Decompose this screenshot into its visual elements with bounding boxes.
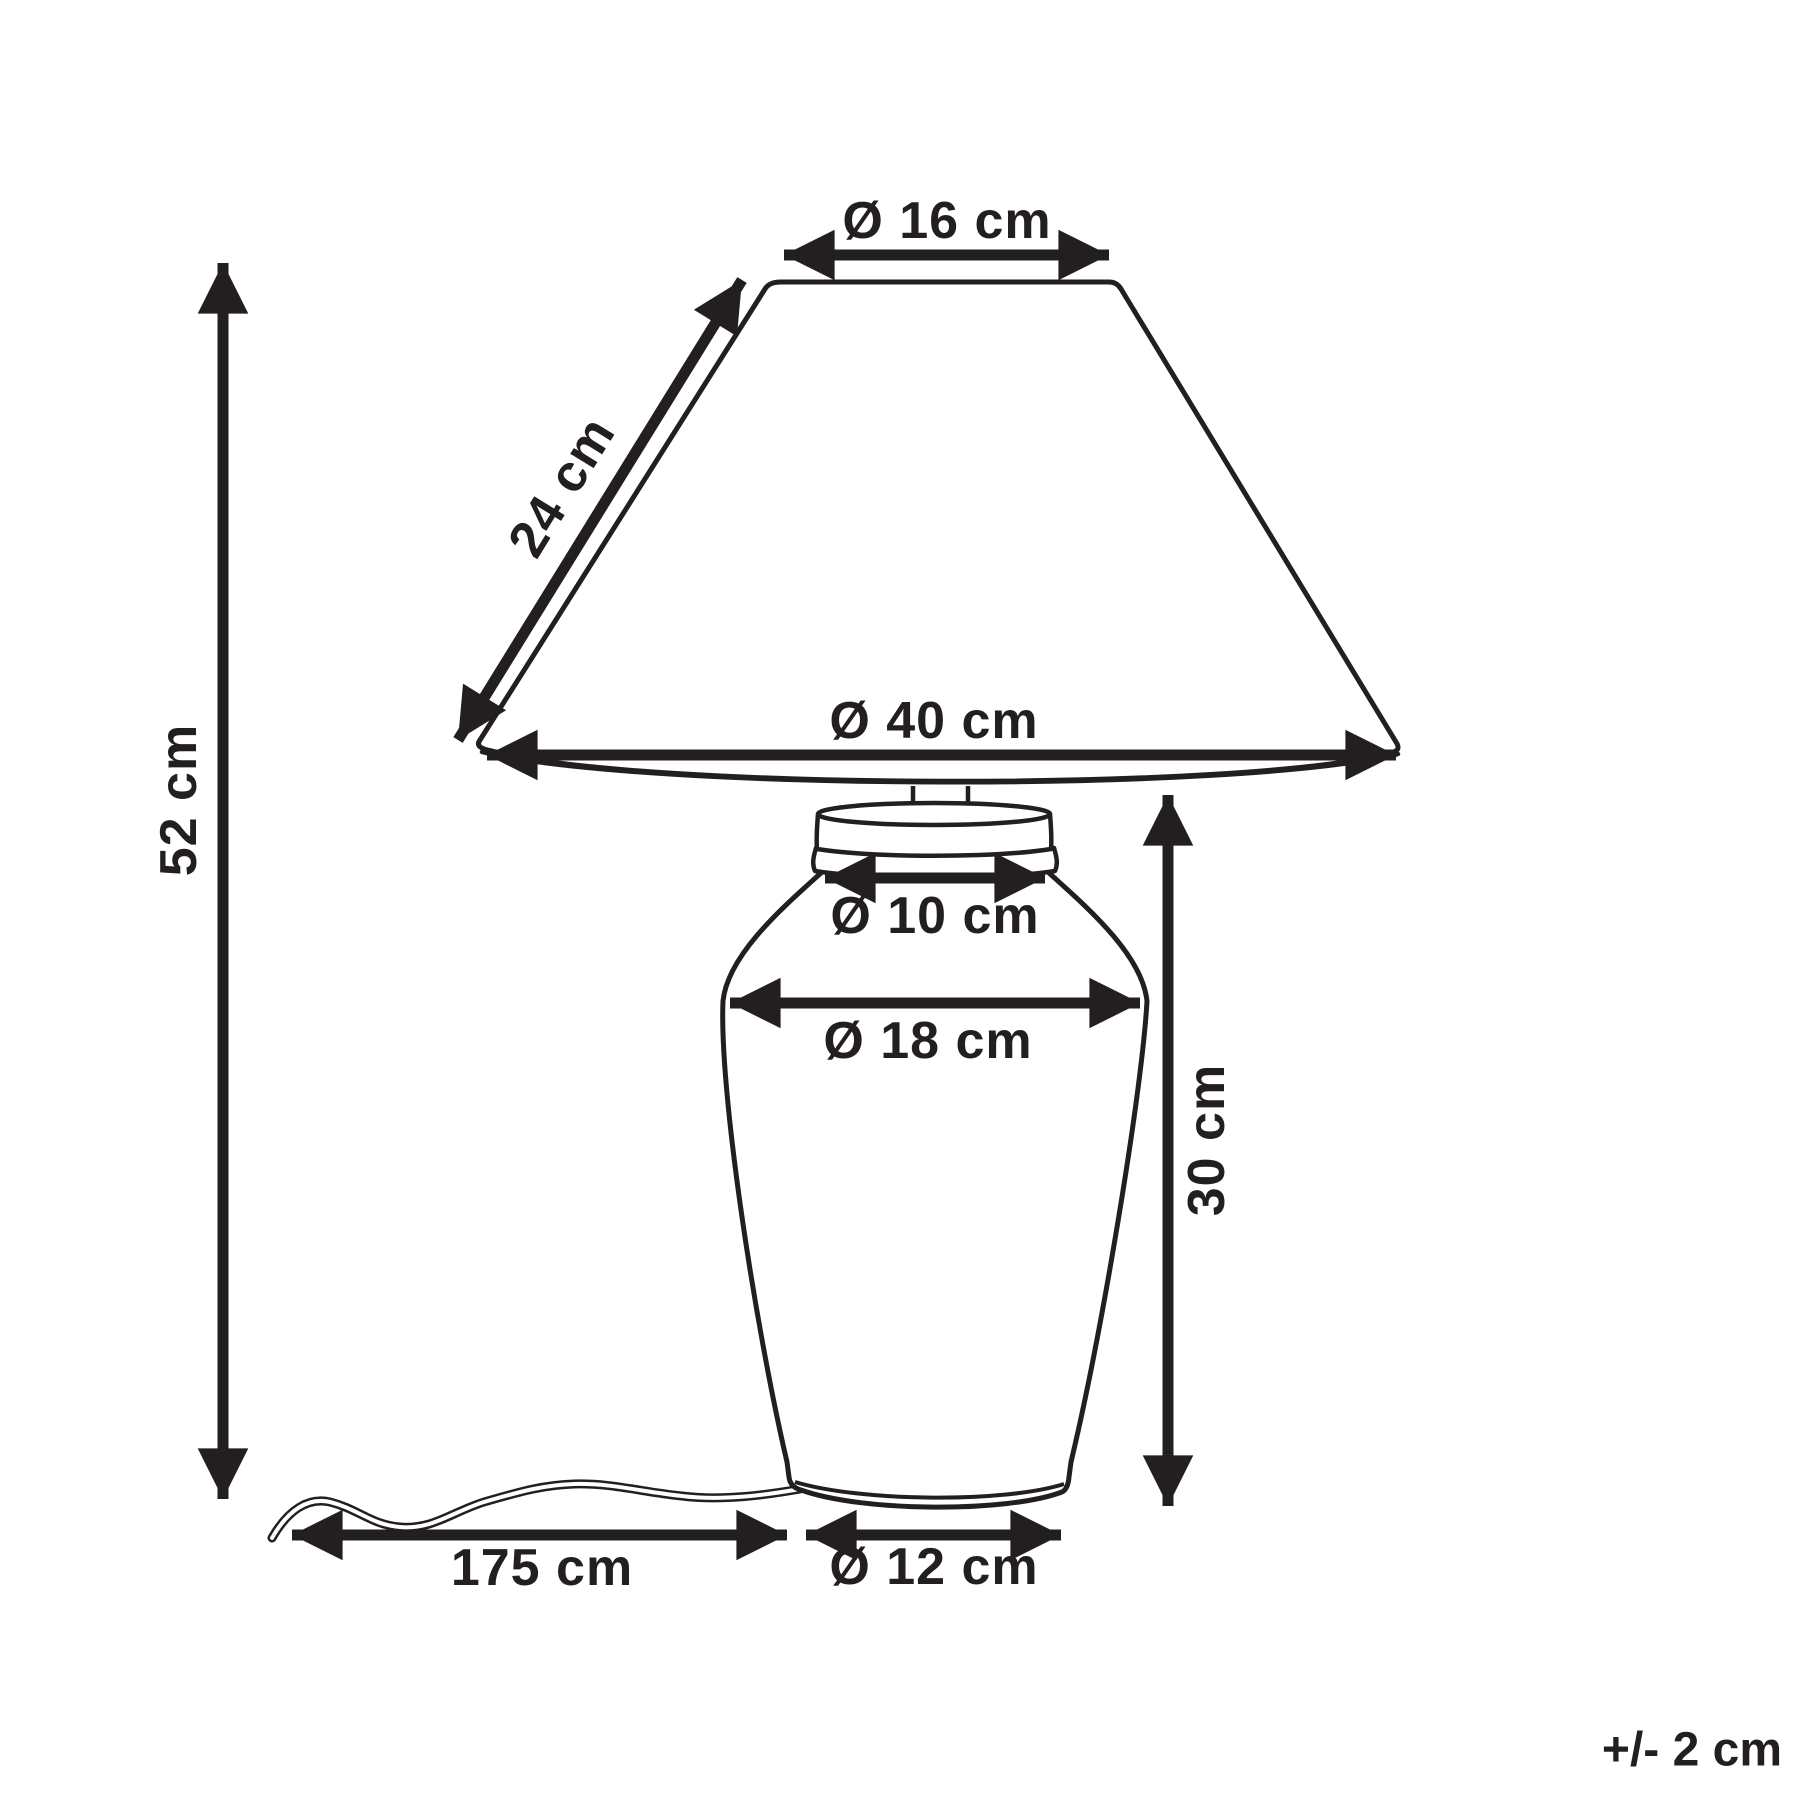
lamp-base-body [723,872,1147,1507]
lamp-neck-top-ellipse [818,803,1050,825]
dim-label-base-height: 30 cm [1178,1064,1236,1216]
dim-label-shade-top-diameter: Ø 16 cm [842,192,1051,250]
lamp-dimension-diagram: Ø 16 cm 24 cm Ø 40 cm Ø 10 cm Ø 18 cm 30… [0,0,1800,1800]
diagram-canvas: Ø 16 cm 24 cm Ø 40 cm Ø 10 cm Ø 18 cm 30… [0,0,1800,1800]
dim-label-total-height: 52 cm [150,724,208,876]
dim-label-neck-diameter: Ø 10 cm [830,887,1039,945]
dim-label-body-diameter: Ø 18 cm [823,1012,1032,1070]
dim-label-shade-bottom-diameter: Ø 40 cm [829,692,1038,750]
dim-label-cable-length: 175 cm [451,1539,633,1597]
dim-label-foot-diameter: Ø 12 cm [829,1538,1038,1596]
tolerance-note: +/- 2 cm [1602,1724,1782,1777]
